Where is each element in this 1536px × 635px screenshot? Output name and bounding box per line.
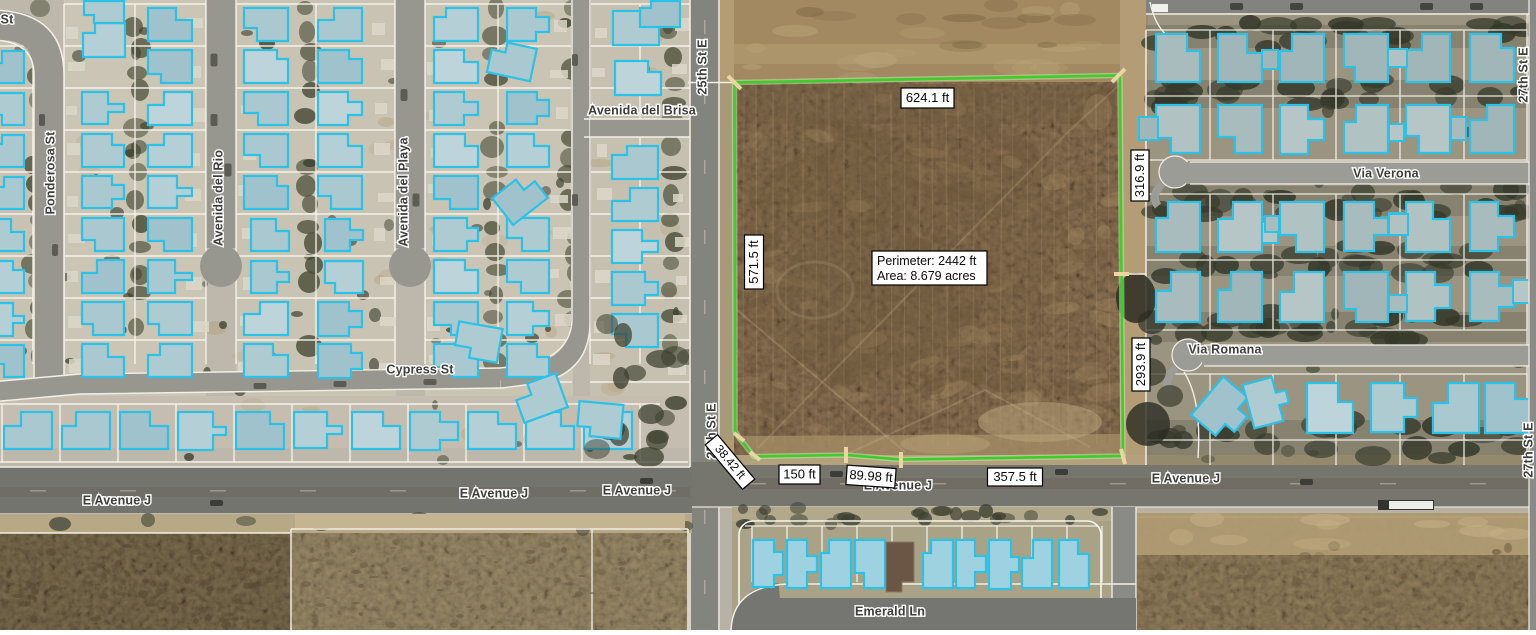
svg-text:293.9 ft: 293.9 ft (1133, 342, 1148, 386)
svg-text:E Avenue J: E Avenue J (1152, 471, 1220, 485)
svg-text:E Avenue J: E Avenue J (460, 486, 528, 500)
svg-text:Perimeter: 2442 ft: Perimeter: 2442 ft (877, 254, 977, 268)
svg-text:Area: 8.679 acres: Area: 8.679 acres (877, 269, 976, 283)
svg-text:89.98 ft: 89.98 ft (849, 467, 894, 485)
svg-text:Emerald Ln: Emerald Ln (855, 604, 925, 618)
svg-text:St: St (1, 12, 15, 26)
svg-text:624.1 ft: 624.1 ft (906, 90, 950, 105)
svg-text:27th St E: 27th St E (1521, 422, 1535, 477)
svg-text:357.5 ft: 357.5 ft (993, 469, 1037, 484)
svg-text:150 ft: 150 ft (783, 466, 816, 481)
svg-text:25th St E: 25th St E (695, 39, 709, 94)
svg-text:Via Romana: Via Romana (1188, 342, 1262, 356)
svg-text:27th St E: 27th St E (1516, 47, 1530, 102)
svg-text:316.9 ft: 316.9 ft (1132, 153, 1147, 197)
svg-text:E Avenue J: E Avenue J (83, 493, 151, 507)
svg-text:Ponderosa St: Ponderosa St (43, 131, 57, 215)
svg-text:Avenida del Brisa: Avenida del Brisa (588, 103, 697, 117)
svg-text:571.5 ft: 571.5 ft (746, 240, 761, 284)
svg-text:E Avenue J: E Avenue J (603, 483, 671, 497)
svg-text:Cypress St: Cypress St (386, 362, 454, 376)
svg-text:Avenida del Playa: Avenida del Playa (396, 137, 410, 247)
svg-text:Via Verona: Via Verona (1353, 166, 1420, 180)
svg-text:Avenida del Rio: Avenida del Rio (211, 150, 225, 246)
